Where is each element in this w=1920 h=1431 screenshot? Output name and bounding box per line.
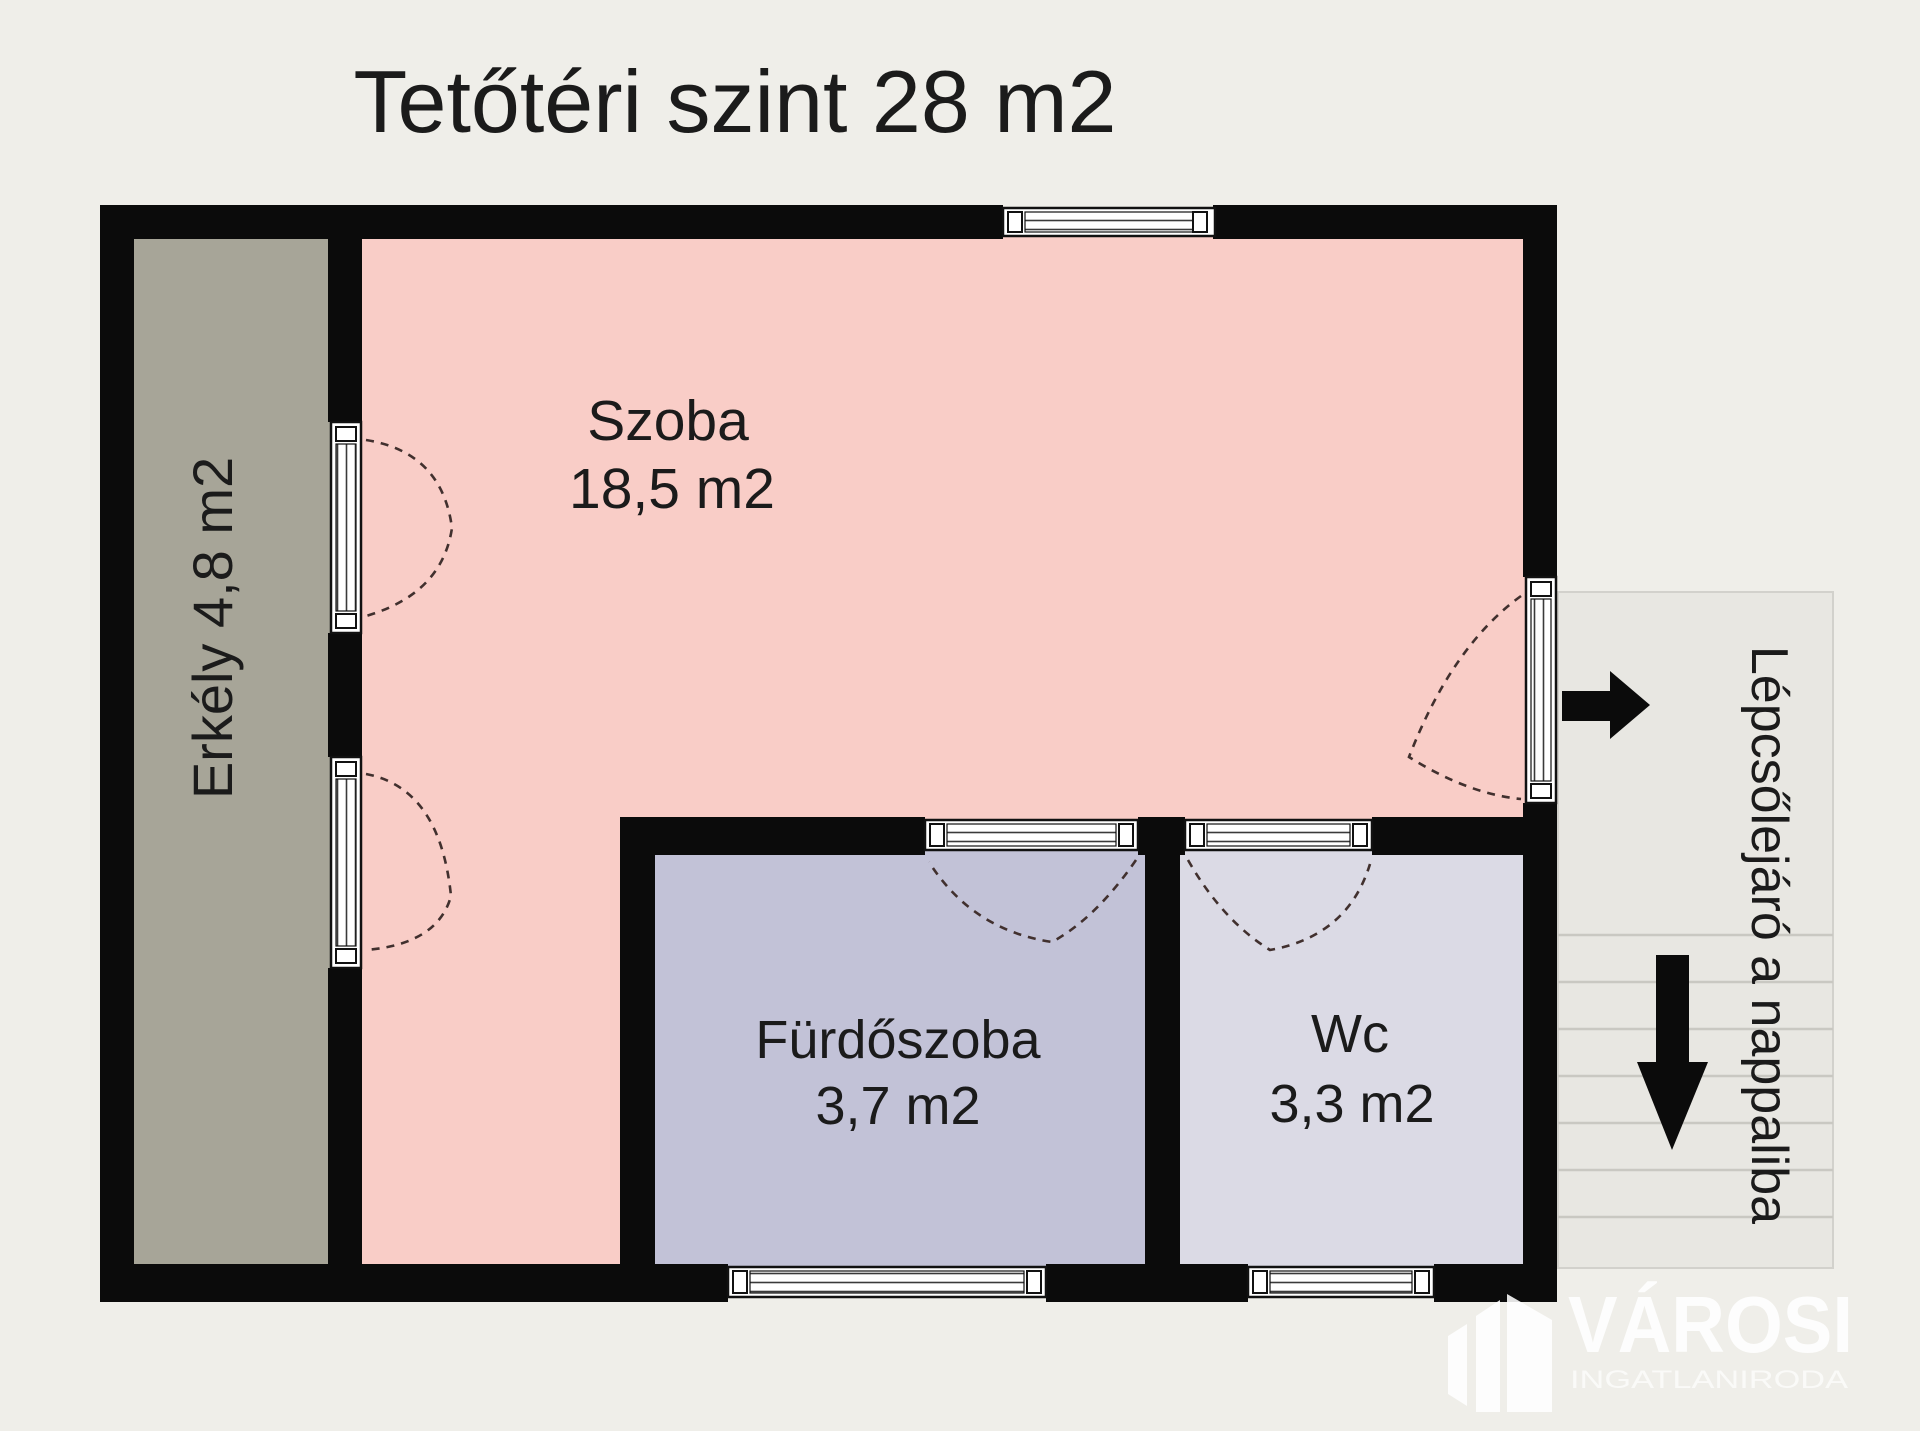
stairwell: Lépcsőlejáró a nappaliba <box>1558 592 1833 1268</box>
szoba-label: Szoba <box>587 389 749 453</box>
floorplan-canvas: Tetőtéri szint 28 m2 Lépcsőlejáró a napp… <box>0 0 1920 1431</box>
stairs-door <box>1526 577 1556 803</box>
furdoszoba-door <box>925 820 1138 850</box>
wall-erkely-divider-middle <box>328 633 362 757</box>
wc-label: Wc <box>1311 1004 1389 1064</box>
wall-erkely-divider-top <box>328 205 362 422</box>
wall-furdoszoba-wc-divider <box>1145 855 1180 1302</box>
stairs-label: Lépcsőlejáró a nappaliba <box>1740 646 1798 1224</box>
wall-furdoszoba-left <box>620 817 655 1302</box>
szoba-floor <box>345 220 1540 835</box>
furdoszoba-window <box>728 1267 1046 1297</box>
wall-divider-head <box>1138 817 1185 855</box>
wall-furdoszoba-top <box>620 817 925 855</box>
brand-watermark: VÁROSI INGATLANIRODA <box>1448 1280 1853 1412</box>
balcony-door-lower <box>331 757 361 968</box>
furdoszoba-label: Fürdőszoba <box>755 1010 1041 1070</box>
wc-window <box>1248 1267 1434 1297</box>
wc-area: 3,3 m2 <box>1269 1074 1434 1134</box>
furdoszoba-area: 3,7 m2 <box>815 1076 980 1136</box>
erkely-label: Erkély 4,8 m2 <box>181 457 244 799</box>
wall-right-top <box>1523 205 1557 577</box>
wall-wc-top <box>1372 817 1557 855</box>
window-top <box>1003 208 1215 236</box>
szoba-floor-leg <box>345 820 645 1285</box>
wall-left <box>100 205 134 1302</box>
brand-name: VÁROSI <box>1568 1280 1853 1369</box>
szoba-area: 18,5 m2 <box>569 457 775 521</box>
wall-right-bottom <box>1523 803 1557 1302</box>
page-title: Tetőtéri szint 28 m2 <box>354 52 1117 151</box>
brand-subtitle: INGATLANIRODA <box>1570 1366 1848 1394</box>
wc-door <box>1185 820 1372 850</box>
wall-top-left <box>100 205 1003 239</box>
wall-top-right <box>1213 205 1557 239</box>
wall-erkely-divider-bottom <box>328 968 362 1302</box>
balcony-door-upper <box>331 422 361 633</box>
